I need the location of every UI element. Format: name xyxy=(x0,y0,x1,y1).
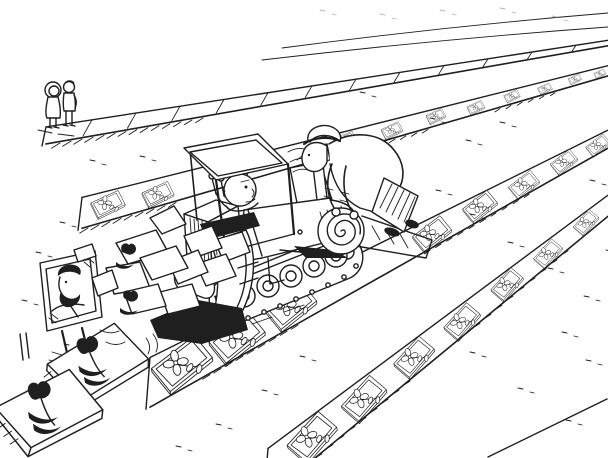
ground-speck xyxy=(436,190,452,195)
ground-speck xyxy=(360,92,376,97)
ground-speck xyxy=(216,424,232,429)
ground-speck xyxy=(548,268,564,273)
cartoon-illustration xyxy=(0,0,608,458)
ground-speck xyxy=(36,252,52,257)
ground-speck xyxy=(22,300,38,305)
ground-speck xyxy=(300,356,316,361)
ground-speck xyxy=(500,8,516,13)
ground-speck xyxy=(320,10,336,15)
worker-hand xyxy=(350,211,358,219)
woman-head xyxy=(49,86,59,96)
ground-speck xyxy=(584,296,600,301)
man-shirt xyxy=(63,93,75,111)
worker-head xyxy=(302,143,327,172)
cartoon-canvas xyxy=(0,0,608,458)
ground-speck xyxy=(440,10,456,15)
ground-speck xyxy=(60,222,76,227)
ground-speck xyxy=(562,332,578,337)
ground-speck xyxy=(590,180,606,185)
worker-hand xyxy=(332,208,340,216)
ground-speck xyxy=(380,14,396,19)
ground-speck xyxy=(176,446,192,451)
ground-speck xyxy=(500,122,516,127)
front-edge-line xyxy=(488,399,607,457)
ground-speck xyxy=(508,242,524,247)
ground-speck xyxy=(90,160,106,165)
ground-speck xyxy=(262,390,278,395)
ground-speck xyxy=(140,156,156,161)
ground-speck xyxy=(518,388,534,393)
ground-speck xyxy=(466,140,482,145)
ground-speck xyxy=(566,420,582,425)
ground-speck xyxy=(470,352,486,357)
woman-dress xyxy=(46,97,60,118)
ground-speck xyxy=(586,360,602,365)
tulip-tiles xyxy=(0,318,157,458)
